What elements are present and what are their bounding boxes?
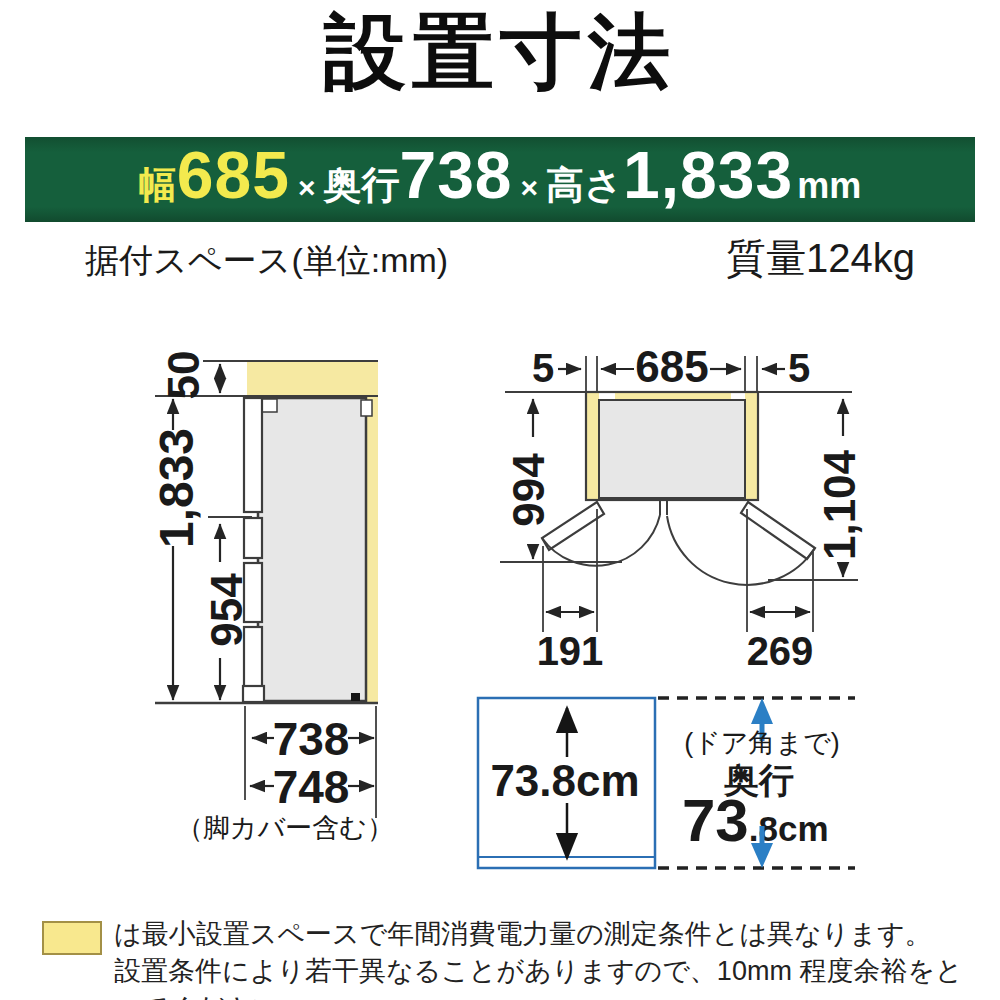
fridge-body-top bbox=[599, 400, 745, 498]
fridge-back-foot bbox=[351, 693, 360, 701]
depth-value-big: 73 bbox=[682, 787, 749, 854]
dim-50-label: 50 bbox=[159, 351, 208, 400]
fridge-door-panel-1 bbox=[244, 398, 262, 512]
top-view-diagram: 5 685 5 994 1,104 191 bbox=[500, 342, 864, 674]
side-view-diagram: 50 1,833 954 738 748 （脚カバー含む） bbox=[150, 351, 394, 843]
dim-1104-label: 1,104 bbox=[815, 449, 864, 560]
side-top-clearance-area bbox=[247, 361, 378, 396]
fridge-top-hinge-back bbox=[361, 400, 372, 416]
fridge-door-panel-2 bbox=[244, 518, 262, 558]
fridge-body-side bbox=[258, 398, 366, 701]
install-space-label: 据付スペース(単位:mm) bbox=[25, 238, 448, 284]
dim-738-label: 738 bbox=[273, 713, 350, 765]
footnote: は最小設置スペースで年間消費電力量の測定条件とは異なります。 設置条件により若干… bbox=[42, 916, 982, 1000]
dim-1833-label: 1,833 bbox=[150, 428, 203, 548]
dim-954-label: 954 bbox=[202, 573, 251, 647]
banner-unit: mm bbox=[797, 165, 861, 207]
banner-depth-value: 738 bbox=[399, 137, 512, 213]
dim-748-label: 748 bbox=[273, 761, 350, 813]
banner-times-1: × bbox=[298, 171, 316, 205]
dim-191-label: 191 bbox=[537, 629, 604, 673]
banner-height-value: 1,833 bbox=[623, 137, 793, 213]
dim-994-label: 994 bbox=[504, 453, 553, 527]
yellow-clearance-swatch bbox=[42, 921, 102, 955]
banner-width-value: 685 bbox=[177, 137, 290, 213]
banner-times-2: × bbox=[521, 171, 539, 205]
depth-box-label: 73.8cm bbox=[490, 756, 639, 805]
depth-view-diagram: 73.8cm (ドア角まで) 奥行 73.8cm bbox=[478, 698, 855, 868]
dim-269-label: 269 bbox=[747, 629, 814, 673]
fridge-front-foot bbox=[243, 686, 264, 702]
dimensions-banner: 幅685×奥行738×高さ1,833mm bbox=[25, 137, 975, 222]
weight-label: 質量124kg bbox=[726, 231, 975, 286]
banner-depth-label: 奥行 bbox=[323, 160, 399, 211]
footnote-line-1: は最小設置スペースで年間消費電力量の測定条件とは異なります。 bbox=[114, 916, 982, 953]
banner-height-label: 高さ bbox=[546, 160, 623, 211]
banner-width-label: 幅 bbox=[139, 160, 177, 211]
top-right-clearance-band bbox=[745, 392, 758, 500]
subheader-row: 据付スペース(単位:mm) 質量124kg bbox=[25, 231, 975, 286]
top-rear-clearance-band bbox=[615, 393, 731, 400]
right-door-open bbox=[741, 502, 815, 559]
dim-5-right-label: 5 bbox=[788, 346, 810, 390]
door-corner-note: (ドア角まで) bbox=[684, 728, 840, 758]
dim-685-label: 685 bbox=[635, 342, 708, 391]
footnote-line-2: 設置条件により若干異なることがありますので、10mm 程度余裕をとってください。 bbox=[114, 953, 982, 1000]
dim-5-left-label: 5 bbox=[532, 346, 554, 390]
blue-up-arrowhead bbox=[751, 698, 773, 724]
top-left-clearance-band bbox=[586, 392, 599, 500]
page-title: 設置寸法 bbox=[0, 6, 1000, 98]
installation-diagram: 50 1,833 954 738 748 （脚カバー含む） 5 685 5 bbox=[0, 330, 1000, 900]
blue-down-arrowhead bbox=[751, 843, 773, 868]
leg-cover-note: （脚カバー含む） bbox=[176, 813, 394, 843]
